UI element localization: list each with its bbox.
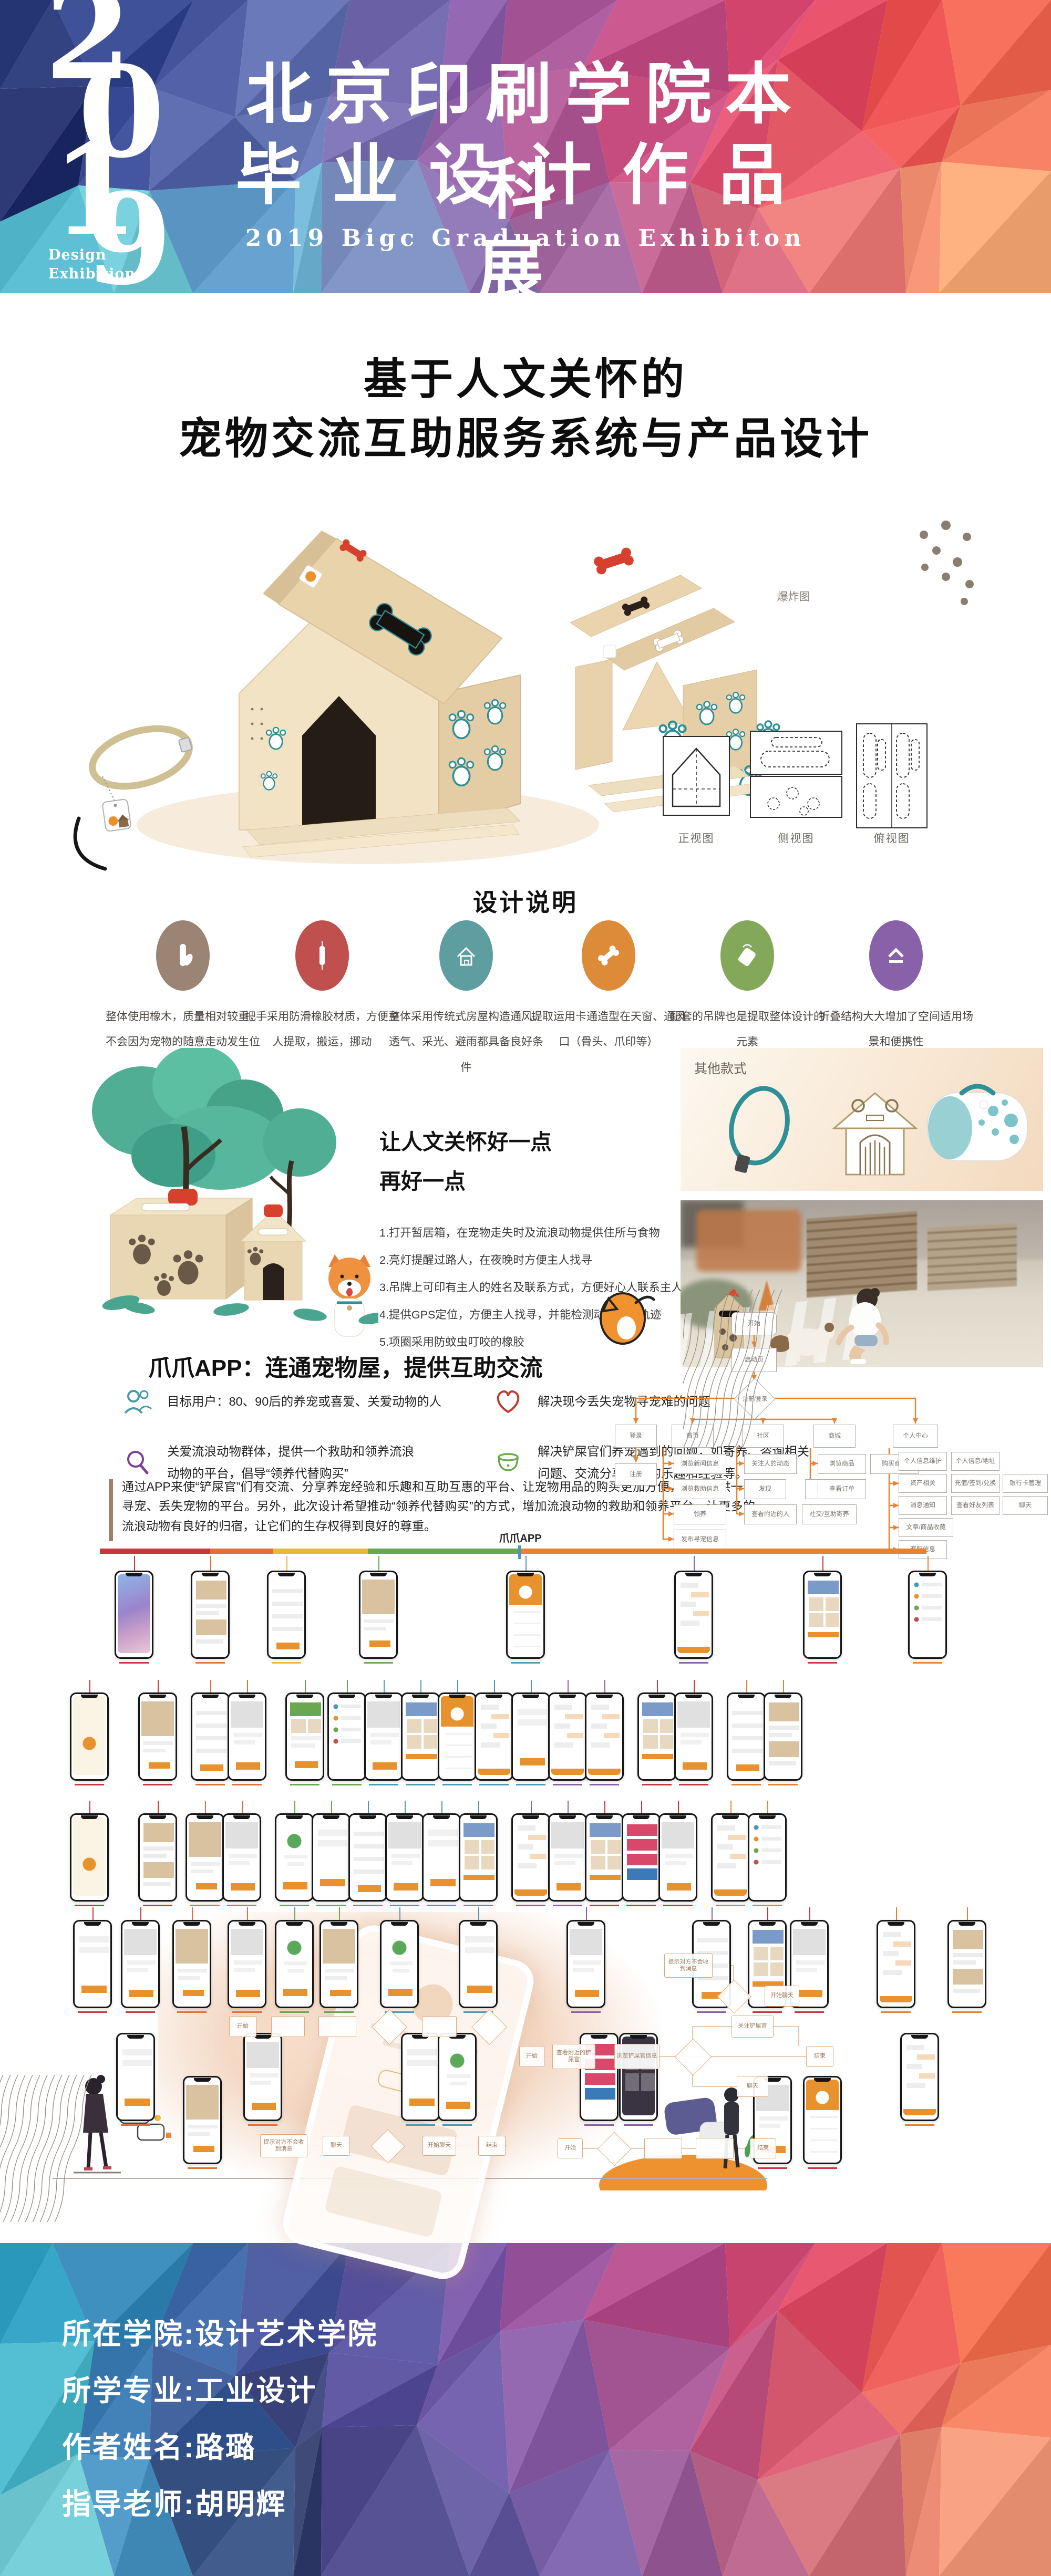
house-icon — [439, 920, 493, 991]
phone-mockup — [191, 1571, 230, 1659]
phone-connector-line — [568, 1680, 569, 1692]
phone-screen-shop — [588, 1817, 621, 1896]
phone-underline — [881, 2011, 911, 2013]
design-note-item: 折叠结构大大增加了空间适用场景和便携性 — [817, 920, 975, 1055]
work-title-line1: 基于人文关怀的 — [0, 344, 1051, 407]
phone-mockup — [585, 1813, 624, 1902]
timeline-app-label: 爪爪APP — [473, 1530, 568, 1545]
phone-mockup — [401, 1692, 440, 1781]
phone-mockup — [191, 1692, 230, 1781]
app-feature-text: 目标用户：80、90后的养宠或喜爱、关爱动物的人 — [167, 1390, 461, 1412]
footer-major: 所学专业:工业设计 — [62, 2367, 317, 2409]
phone-mockup — [438, 1692, 477, 1781]
phone-connector-line — [928, 1556, 929, 1571]
flow-start-chat: 开始聊天 — [423, 2136, 456, 2156]
flow-hint: 提示对方不会收到消息 — [664, 1954, 713, 1978]
tag-icon — [720, 920, 774, 991]
phone-mockup — [658, 1813, 697, 1902]
phone-screen-chat — [677, 1574, 710, 1653]
phone-underline — [768, 1784, 798, 1785]
magnifier-icon — [121, 1446, 154, 1479]
phone-mockup — [228, 1920, 266, 2008]
design-note-caption: 整体采用传统式房屋构造通风、透气、采光、避雨都具备良好条件 — [387, 1004, 545, 1081]
phone-connector-line — [368, 1801, 369, 1813]
phone-connector-line — [478, 1801, 479, 1813]
design-note-caption: 提取运用卡通造型在天窗、通风口（骨头、爪印等） — [530, 1004, 687, 1055]
phone-mockup — [511, 1692, 550, 1781]
phone-screen-menu — [331, 1696, 363, 1775]
phone-mockup — [622, 1813, 661, 1902]
handle-icon — [295, 920, 349, 991]
sitemap-community-sub: 社交/互助寄养 — [802, 1504, 857, 1524]
phone-mockup — [186, 1813, 224, 1902]
sitemap-profile-sub: 文章/商品收藏 — [899, 1518, 953, 1537]
phone-screen-list — [270, 1574, 303, 1653]
phone-underline — [590, 1784, 619, 1785]
phone-mockup — [348, 1813, 387, 1902]
phone-screen-detail — [231, 1696, 263, 1775]
flow-step — [422, 2016, 457, 2037]
footer-college: 所在学院:设计艺术学院 — [62, 2310, 378, 2352]
phone-screen-form — [404, 2037, 437, 2115]
phone-screen-detail — [124, 1924, 157, 2002]
phone-screen-detail — [231, 1924, 263, 2002]
phone-screen-splash2 — [73, 1696, 106, 1775]
phone-screen-check — [278, 1817, 311, 1896]
phone-mockup — [548, 1692, 587, 1781]
phone-connector-line — [525, 1556, 527, 1571]
phone-screen-menu — [751, 1817, 784, 1896]
phone-connector-line — [641, 1801, 642, 1813]
phone-mockup — [275, 1813, 314, 1902]
phone-connector-line — [822, 1556, 823, 1571]
phone-underline — [190, 1905, 220, 1906]
timeline-segment — [273, 1549, 368, 1554]
phone-screen-green — [288, 1696, 321, 1775]
sitemap-profile-sub: 资产相关 — [899, 1474, 947, 1493]
phone-underline — [952, 2011, 982, 2013]
phone-connector-line — [568, 1801, 569, 1813]
phone-screen-detail — [246, 2037, 279, 2115]
phone-underline — [511, 1662, 540, 1664]
phone-underline — [353, 1905, 383, 1906]
phone-mockup — [73, 1920, 112, 2008]
phone-connector-line — [134, 1556, 135, 1571]
sitemap-profile-sub: 充值/签到/兑换 — [951, 1474, 1000, 1493]
phone-connector-line — [657, 1680, 658, 1692]
phone-underline — [324, 2011, 354, 2013]
phone-mockup — [380, 1920, 419, 2008]
flow-chat: 聊天 — [323, 2136, 350, 2156]
phone-connector-line — [767, 1907, 768, 1920]
phone-mockup — [364, 1692, 403, 1781]
phone-screen-chat — [903, 2037, 936, 2115]
flow-follow-owner: 关注铲屎官 — [731, 2016, 774, 2038]
phone-underline — [232, 1784, 262, 1785]
phone-mockup — [115, 1571, 153, 1659]
phone-connector-line — [210, 1680, 211, 1692]
flow-start: 开始 — [558, 2138, 583, 2158]
phone-connector-line — [210, 1556, 211, 1571]
phone-mockup — [674, 1571, 713, 1659]
timeline-segment — [100, 1549, 210, 1554]
phone-screen-photo — [189, 1817, 221, 1896]
phone-screen-list — [194, 1696, 226, 1775]
phone-connector-line — [158, 1680, 159, 1692]
flow-step — [644, 2138, 682, 2159]
phone-underline — [280, 2011, 309, 2013]
phone-underline — [584, 2124, 614, 2126]
phone-underline — [679, 1662, 708, 1664]
phone-connector-line — [767, 1801, 768, 1813]
phone-mockup — [312, 1813, 351, 1902]
phone-connector-line — [457, 1680, 458, 1692]
sitemap-mall: 商城 — [813, 1425, 856, 1448]
flow-end: 结束 — [806, 2046, 833, 2067]
phone-connector-line — [205, 1801, 206, 1813]
phone-screen-chat — [714, 1817, 747, 1896]
phone-mockup — [172, 1920, 211, 2008]
phone-connector-line — [92, 1907, 94, 1920]
phone-underline — [232, 2011, 262, 2013]
sitemap-profile-sub: 聊天 — [1003, 1496, 1048, 1515]
phone-mockup — [401, 2033, 440, 2121]
phone-connector-line — [730, 1801, 731, 1813]
phone-mockup — [900, 2033, 939, 2121]
phone-underline — [75, 1784, 104, 1785]
phone-mockup — [222, 1813, 261, 1902]
phone-screen-chat — [514, 1817, 547, 1896]
phone-screen-shop — [462, 1817, 494, 1896]
brand-word-exhibition: Exhibition — [48, 266, 136, 282]
timeline-tick — [518, 1545, 521, 1559]
phone-screen-check — [383, 1924, 416, 2002]
phone-connector-line — [158, 1801, 159, 1813]
phone-mockup — [70, 1692, 109, 1781]
sitemap-profile: 个人中心 — [893, 1425, 938, 1448]
phone-underline — [679, 1784, 708, 1785]
phone-mockup — [803, 1571, 842, 1659]
phone-connector-line — [604, 1801, 605, 1813]
phone-underline — [78, 2011, 107, 2013]
phone-connector-line — [678, 1801, 679, 1813]
phone-screen-list — [730, 1696, 763, 1775]
phone-underline — [280, 1905, 309, 1906]
phone-mockup — [764, 1692, 802, 1781]
phone-mockup — [459, 1813, 498, 1902]
phone-underline — [316, 1905, 346, 1906]
phone-underline — [119, 1662, 149, 1664]
phone-mockup — [267, 1571, 306, 1659]
phone-mockup — [548, 1813, 587, 1902]
product-render-illustration — [0, 489, 1051, 877]
phone-mockup — [285, 1692, 324, 1781]
side-view-label: 侧视图 — [759, 830, 833, 846]
phone-screen-splash1 — [118, 1574, 150, 1653]
phone-underline — [516, 1784, 545, 1785]
sitemap-mall-sub: 浏览商品 — [818, 1454, 866, 1474]
phone-connector-line — [192, 1907, 193, 1920]
phone-mockup — [243, 2033, 282, 2121]
header-title-line2: 毕业设计作品展 — [210, 122, 841, 293]
phone-screen-shop — [806, 1574, 839, 1653]
phone-screen-orange — [441, 1696, 473, 1775]
phone-underline — [516, 1905, 545, 1906]
sitemap-profile-sub: 查看好友列表 — [951, 1496, 1000, 1515]
poster-page: 2 0 1 9 Design Exhibition 北京印刷学院本科 毕业设计作… — [0, 0, 1051, 2576]
phone-connector-line — [694, 1680, 695, 1692]
other-styles-label: 其他款式 — [694, 1058, 747, 1077]
phone-connector-line — [294, 1907, 295, 1920]
phone-underline — [272, 1662, 301, 1664]
exploded-view-label: 爆炸图 — [757, 588, 830, 604]
phone-underline — [571, 2011, 601, 2013]
phone-underline — [795, 2011, 824, 2013]
phone-screen-feed — [951, 1924, 983, 2002]
phone-underline — [590, 1905, 619, 1906]
phone-mockup — [70, 1813, 109, 1902]
phone-mockup — [566, 1920, 605, 2008]
brand-word-design: Design — [48, 247, 107, 263]
phone-mockup — [877, 1920, 915, 2008]
phone-underline — [808, 2167, 837, 2169]
sitemap-profile-sub: 个人信息/地址 — [951, 1452, 1000, 1471]
phone-mockup — [585, 1692, 624, 1781]
phone-connector-line — [247, 1680, 248, 1692]
bone-icon — [582, 920, 635, 991]
phone-mockup — [385, 1813, 424, 1902]
phone-screen-form — [76, 1924, 109, 2002]
phone-connector-line — [531, 1680, 532, 1692]
paragraph-accent-bar — [109, 1479, 113, 1541]
phone-underline — [406, 2124, 435, 2126]
phone-screen-detail — [225, 1817, 258, 1896]
top-view-label: 俯视图 — [855, 830, 929, 846]
sitemap-register: 注册 — [615, 1463, 657, 1486]
phone-screen-form — [425, 1817, 458, 1896]
phone-connector-line — [331, 1801, 332, 1813]
header-title-english: 2019 Bigc Graduation Exhibiton — [210, 225, 841, 252]
phone-screen-photo — [323, 1924, 355, 2002]
phone-connector-line — [586, 1907, 587, 1920]
sitemap-home-sub: 发布寻宠信息 — [674, 1530, 726, 1550]
phone-underline — [227, 1905, 256, 1906]
phone-mockup — [228, 1692, 266, 1781]
phone-connector-line — [247, 1907, 248, 1920]
phone-mockup — [116, 2033, 155, 2121]
phone-underline — [731, 1784, 761, 1785]
phone-screen-chat — [588, 1696, 621, 1775]
heart-icon — [491, 1385, 525, 1418]
front-view-label: 正视图 — [660, 830, 733, 846]
phone-connector-line — [405, 1801, 406, 1813]
phone-underline — [553, 1905, 582, 1906]
phone-mockup — [138, 1813, 177, 1902]
header-banner: 2 0 1 9 Design Exhibition 北京印刷学院本科 毕业设计作… — [0, 0, 1051, 293]
phone-screen-feed — [194, 1574, 226, 1653]
phone-connector-line — [399, 1907, 400, 1920]
better-care-point: 5.项圈采用防蚊虫叮咬的橡胶 — [379, 1333, 524, 1349]
flow-chat: 聊天 — [737, 2076, 768, 2097]
flow-step — [696, 2138, 734, 2159]
phone-underline — [177, 2011, 207, 2013]
design-note-item: 配套的吊牌也是提取整体设计的元素 — [668, 920, 826, 1055]
phone-mockup — [506, 1571, 545, 1659]
phone-screen-detail — [677, 1696, 710, 1775]
phone-connector-line — [242, 1801, 243, 1813]
phone-underline — [479, 1784, 509, 1785]
phone-connector-line — [384, 1680, 385, 1692]
timeline-segment — [368, 1549, 520, 1554]
phone-underline — [753, 2011, 782, 2013]
phone-connector-line — [286, 1556, 287, 1571]
flow-browse-owner: 浏览铲屎官信息 — [614, 2044, 660, 2069]
flow-start: 开始 — [229, 2016, 256, 2037]
phone-connector-line — [783, 1680, 784, 1692]
phone-underline — [364, 1662, 393, 1664]
phone-screen-check — [441, 2037, 473, 2115]
phone-underline — [427, 1905, 456, 1906]
phone-screen-list — [352, 1817, 384, 1896]
phone-underline — [642, 1784, 672, 1785]
phone-underline — [390, 1905, 419, 1906]
phone-connector-line — [494, 1680, 495, 1692]
phone-underline — [463, 1905, 493, 1906]
phone-underline — [126, 2011, 155, 2013]
phone-screen-orange — [806, 2080, 839, 2158]
phone-screen-feed — [141, 1817, 174, 1896]
wavy-line-pattern — [683, 1290, 788, 1452]
phone-screen-photo — [186, 2080, 219, 2158]
design-note-item: 整体采用传统式房屋构造通风、透气、采光、避雨都具备良好条件 — [387, 920, 545, 1081]
phone-underline — [121, 2124, 150, 2126]
flow-step — [318, 2016, 356, 2037]
flow-start-chat: 开始聊天 — [765, 1986, 799, 2007]
phone-screen-detail — [570, 1924, 602, 2002]
phone-underline — [290, 1784, 320, 1785]
sitemap-home-sub: 浏览新闻信息 — [674, 1454, 726, 1474]
phone-mockup — [320, 1920, 358, 2008]
phone-underline — [442, 1784, 472, 1785]
phone-screen-form — [462, 1924, 494, 2002]
bowl-icon — [491, 1446, 525, 1479]
design-notes-title: 设计说明 — [0, 884, 1051, 918]
sitemap-profile-sub: 个人信息维护 — [899, 1452, 947, 1471]
phone-screen-form — [119, 2037, 152, 2115]
phone-connector-line — [604, 1680, 605, 1692]
phone-underline — [143, 1905, 172, 1906]
phone-underline — [905, 2124, 934, 2126]
phone-connector-line — [441, 1801, 442, 1813]
phone-underline — [195, 1784, 225, 1785]
phone-mockup — [183, 2076, 222, 2164]
sitemap-login: 登录 — [615, 1425, 657, 1448]
wavy-line-pattern — [0, 2075, 95, 2227]
phone-underline — [75, 1905, 104, 1906]
sitemap-home-sub: 领养 — [674, 1504, 726, 1524]
phone-screen-detail — [367, 1696, 400, 1775]
phone-connector-line — [339, 1907, 340, 1920]
phone-underline — [369, 1784, 398, 1785]
phone-screen-pink — [625, 1817, 657, 1896]
phone-mockup — [511, 1813, 550, 1902]
phone-underline — [716, 1905, 745, 1906]
phone-screen-check — [278, 1924, 311, 2002]
phone-screen-chat — [478, 1696, 510, 1775]
sitemap-profile-sub: 银行卡管理 — [1003, 1474, 1048, 1493]
phone-connector-line — [89, 1801, 90, 1813]
phone-mockup — [475, 1692, 513, 1781]
phone-underline — [188, 2167, 217, 2169]
fold-icon — [869, 920, 923, 991]
phone-connector-line — [140, 1907, 141, 1920]
phone-underline — [195, 1662, 225, 1664]
phone-mockup — [637, 1692, 676, 1781]
footer-advisor: 指导老师:胡明辉 — [62, 2480, 286, 2522]
phone-connector-line — [746, 1680, 747, 1692]
phone-screen-form — [315, 1817, 347, 1896]
phone-screen-shop — [641, 1696, 673, 1775]
flow-start: 开始 — [519, 2046, 544, 2067]
oak-wood-icon — [156, 920, 210, 991]
phone-screen-feed — [767, 1696, 799, 1775]
phone-underline — [758, 2167, 787, 2169]
phone-screen-splash2 — [73, 1817, 106, 1896]
phone-underline — [626, 1905, 656, 1906]
phone-mockup — [727, 1692, 766, 1781]
doghouse-trees-illustration — [63, 1048, 378, 1347]
design-note-item: 把手采用防滑橡胶材质，方便主人提取，搬运，挪动 — [243, 920, 401, 1055]
phone-connector-line — [712, 1907, 713, 1920]
phone-connector-line — [89, 1680, 90, 1692]
phone-screen-menu — [911, 1574, 944, 1653]
phone-connector-line — [809, 1907, 810, 1920]
flow-view-nearby: 查看附近的铲屎官 — [552, 2044, 595, 2069]
sitemap-mall-sub: 查看订单 — [818, 1479, 866, 1499]
flow-end: 结束 — [750, 2138, 776, 2158]
flow-step — [271, 2016, 305, 2037]
phone-mockup — [947, 1920, 986, 2008]
phone-connector-line — [305, 1680, 306, 1692]
phone-mockup — [121, 1920, 160, 2008]
sitemap-profile-sub: 消息通知 — [899, 1496, 947, 1515]
phone-connector-line — [294, 1801, 295, 1813]
phone-screen-detail — [551, 1817, 584, 1896]
app-section-title: 爪爪APP：连通宠物屋，提供互助交流 — [148, 1349, 542, 1383]
photo-loader-machine — [696, 1210, 801, 1272]
sitemap-community-sub: 查看附近的人 — [744, 1504, 797, 1524]
better-care-point: 1.打开暂居箱，在宠物走失时及流浪动物提供住所与食物 — [379, 1224, 660, 1240]
phone-underline — [663, 1905, 693, 1906]
phone-connector-line — [896, 1907, 897, 1920]
phone-underline — [624, 2124, 653, 2126]
phone-screen-chat — [880, 1924, 912, 2002]
phone-connector-line — [531, 1801, 532, 1813]
phone-screen-detail — [388, 1817, 421, 1896]
footer-lowpoly-background — [0, 2243, 1051, 2576]
better-care-title-line2: 再好一点 — [379, 1164, 466, 1195]
phone-mockup — [711, 1813, 750, 1902]
phone-mockup — [803, 2076, 842, 2164]
phone-mockup — [359, 1571, 398, 1659]
phone-underline — [442, 2124, 472, 2126]
design-note-item: 提取运用卡通造型在天窗、通风口（骨头、爪印等） — [530, 920, 687, 1055]
phone-connector-line — [967, 1907, 968, 1920]
better-care-title-line1: 让人文关怀好一点 — [379, 1124, 552, 1156]
footer-banner — [0, 2243, 1051, 2576]
phone-screen-form — [514, 1696, 547, 1775]
phone-underline — [808, 1662, 837, 1664]
